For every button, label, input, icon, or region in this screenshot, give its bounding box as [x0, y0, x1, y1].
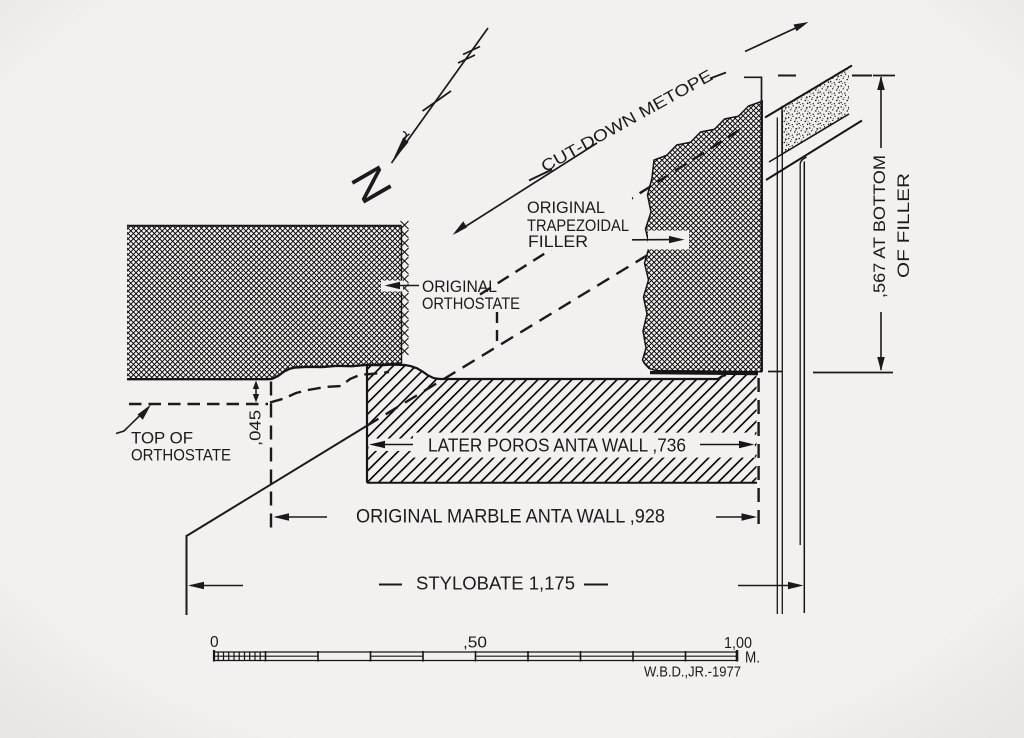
- svg-text:0: 0: [210, 634, 219, 651]
- svg-text:ORTHOSTATE: ORTHOSTATE: [422, 295, 520, 313]
- svg-text:W.B.D.,JR.-1977: W.B.D.,JR.-1977: [644, 665, 741, 681]
- svg-text:,50: ,50: [463, 635, 487, 652]
- svg-text:ORTHOSTATE: ORTHOSTATE: [131, 447, 231, 465]
- svg-text:ORIGINAL: ORIGINAL: [527, 199, 605, 217]
- svg-text:ORIGINAL MARBLE ANTA WALL ,928: ORIGINAL MARBLE ANTA WALL ,928: [356, 506, 665, 528]
- svg-text:,567 AT BOTTOM: ,567 AT BOTTOM: [871, 155, 889, 298]
- svg-text:TOP OF: TOP OF: [131, 430, 193, 448]
- svg-text:FILLER: FILLER: [528, 233, 588, 251]
- svg-text:OF FILLER: OF FILLER: [895, 173, 913, 278]
- svg-text:LATER POROS ANTA WALL ,736: LATER POROS ANTA WALL ,736: [428, 436, 686, 456]
- svg-text:,045: ,045: [248, 410, 265, 446]
- svg-text:STYLOBATE 1,175: STYLOBATE 1,175: [416, 574, 575, 594]
- svg-text:ORIGINAL: ORIGINAL: [422, 278, 497, 296]
- svg-text:M.: M.: [745, 650, 760, 667]
